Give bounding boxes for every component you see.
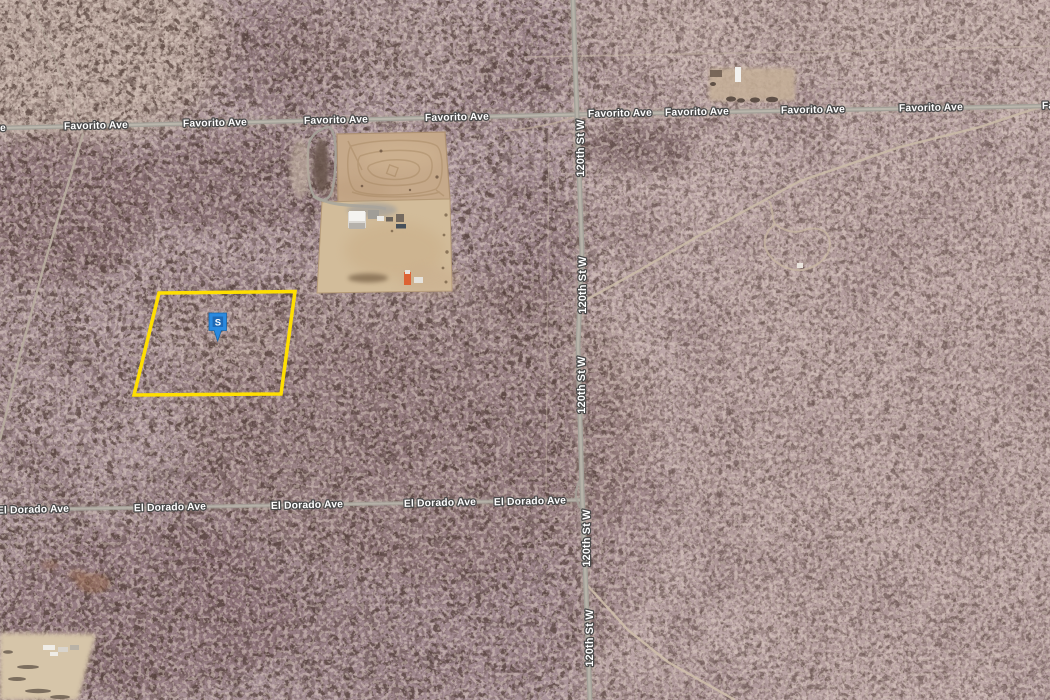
svg-text:Favorito Ave: Favorito Ave: [781, 104, 845, 116]
svg-text:120th St W: 120th St W: [575, 119, 587, 177]
svg-text:El Dorado Ave: El Dorado Ave: [271, 499, 344, 512]
svg-text:Favorito Ave: Favorito Ave: [0, 123, 6, 135]
svg-text:120th St W: 120th St W: [576, 356, 588, 414]
svg-text:Favorito Ave: Favorito Ave: [183, 117, 247, 129]
svg-text:El Dorado Ave: El Dorado Ave: [0, 504, 69, 517]
svg-text:Favorito Ave: Favorito Ave: [588, 108, 652, 120]
svg-text:Favorito Ave: Favorito Ave: [64, 120, 128, 132]
svg-text:120th St W: 120th St W: [581, 509, 593, 567]
svg-text:S: S: [215, 318, 221, 329]
svg-text:Favorito Ave: Favorito Ave: [1042, 100, 1050, 112]
svg-text:Favorito Ave: Favorito Ave: [304, 114, 368, 126]
svg-text:Favorito Ave: Favorito Ave: [899, 102, 963, 114]
svg-text:El Dorado Ave: El Dorado Ave: [404, 497, 477, 510]
svg-text:El Dorado Ave: El Dorado Ave: [134, 501, 207, 514]
svg-text:Favorito Ave: Favorito Ave: [665, 106, 729, 118]
svg-text:Favorito Ave: Favorito Ave: [425, 112, 489, 124]
svg-text:El Dorado Ave: El Dorado Ave: [494, 495, 567, 508]
svg-text:120th St W: 120th St W: [584, 609, 596, 667]
svg-text:120th St W: 120th St W: [577, 256, 589, 314]
